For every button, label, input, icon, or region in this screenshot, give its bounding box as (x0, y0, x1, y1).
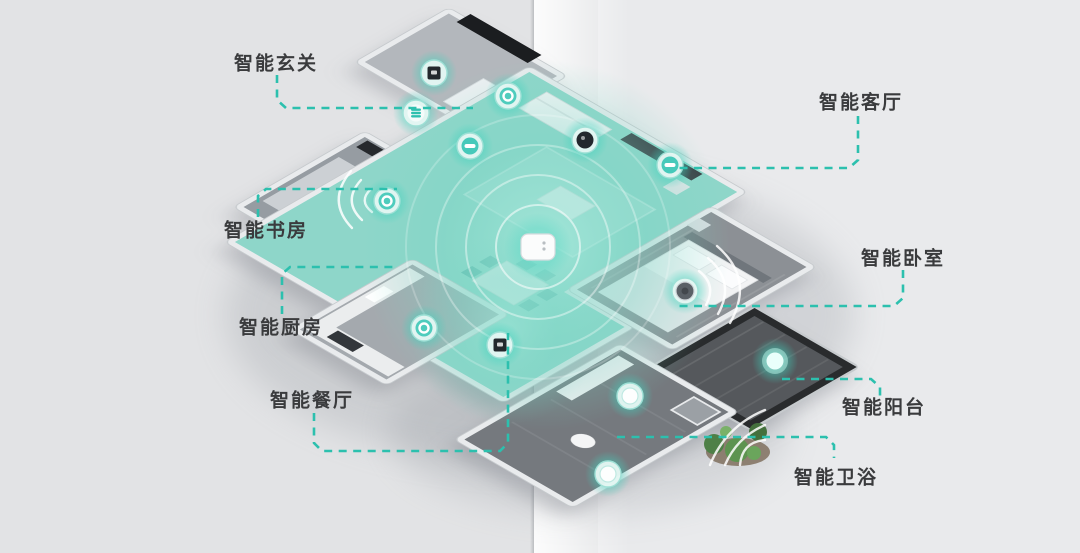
label-entry: 智能玄关 (234, 49, 318, 76)
curtain-controller-device (647, 142, 693, 188)
smart-speaker-device (447, 123, 493, 169)
label-living: 智能客厅 (819, 88, 903, 115)
fresh-air-system-device (393, 90, 439, 136)
balcony-light-device (752, 338, 798, 384)
bathroom-sensor-device (607, 373, 653, 419)
label-kitchen: 智能厨房 (239, 313, 323, 340)
entry-wall-panel-device (411, 50, 457, 96)
study-sensor-device (364, 178, 410, 224)
floorplan-scene (0, 0, 1080, 553)
living-ceiling-light-device (485, 73, 531, 119)
label-study: 智能书房 (224, 216, 308, 243)
label-balcony: 智能阳台 (842, 393, 926, 420)
dining-wall-panel-device (477, 322, 523, 368)
security-camera-device (562, 117, 608, 163)
smart-home-hub-device (504, 213, 572, 281)
kitchen-sensor-device (401, 305, 447, 351)
label-bathroom: 智能卫浴 (794, 463, 878, 490)
bathroom-light-device (585, 451, 631, 497)
smart-home-diagram-page: 智能玄关 智能客厅 智能书房 智能厨房 智能餐厅 智能卧室 智能阳台 智能卫浴 (0, 0, 1080, 553)
label-bedroom: 智能卧室 (861, 244, 945, 271)
label-dining: 智能餐厅 (270, 386, 354, 413)
